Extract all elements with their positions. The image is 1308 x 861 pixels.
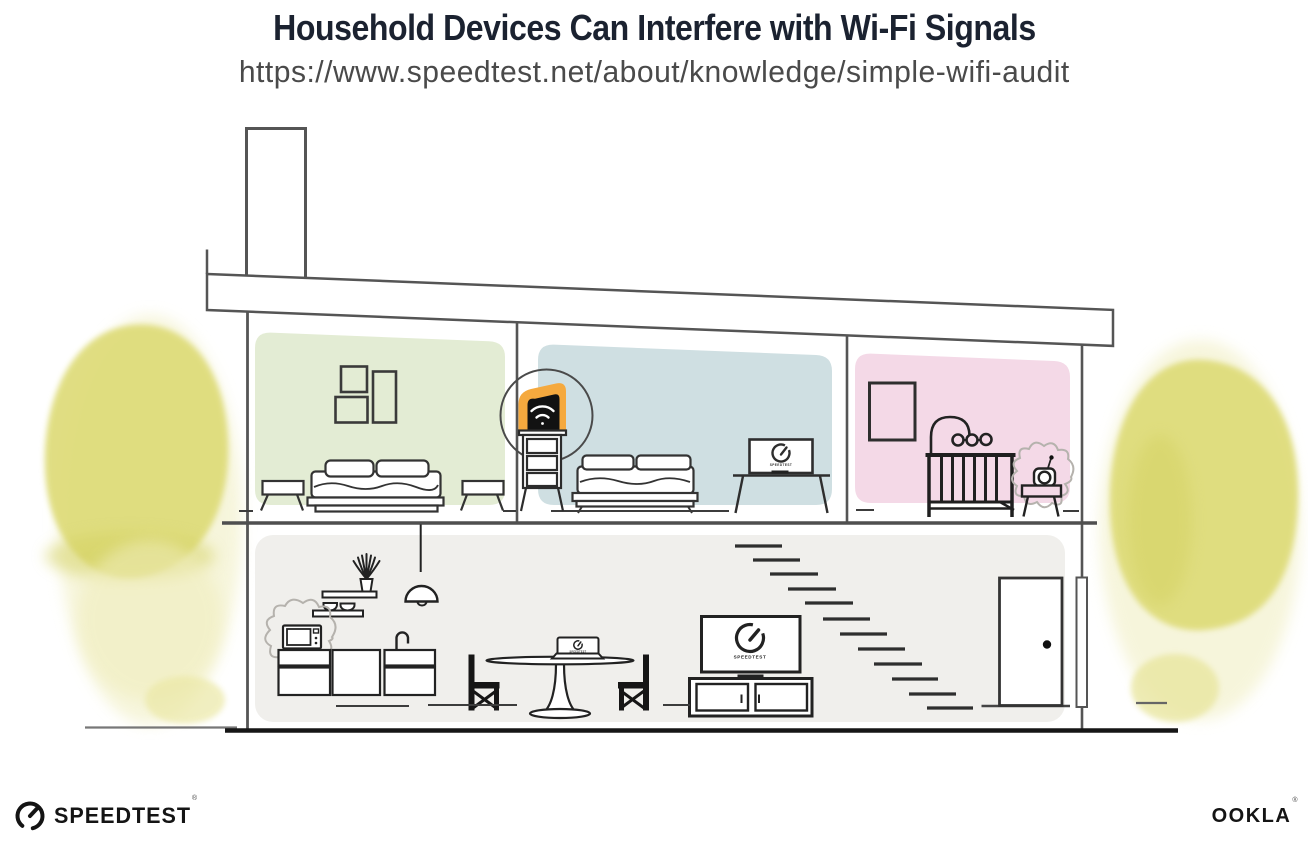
speedtest-wordmark-text: SPEEDTEST xyxy=(54,803,191,828)
dresser-body xyxy=(523,435,561,488)
bed-base xyxy=(316,506,438,512)
laptop-icon: SPEEDTEST xyxy=(552,638,603,659)
pillow xyxy=(637,456,691,470)
tv-area: SPEEDTEST xyxy=(690,617,813,717)
chair-seat xyxy=(618,682,649,689)
foliage-right xyxy=(1100,340,1300,722)
mobile-bead xyxy=(953,435,964,446)
monitor-stand xyxy=(772,471,789,474)
speedtest-gauge-icon xyxy=(13,799,47,833)
foliage-left xyxy=(45,315,242,725)
monitor-screen-label: SPEEDTEST xyxy=(770,463,793,467)
house-cutaway-illustration: SPEEDTEST xyxy=(0,0,1308,861)
pillow xyxy=(583,456,634,470)
mobile-bead xyxy=(981,434,992,445)
pillow xyxy=(377,461,429,477)
bed-base xyxy=(577,501,694,507)
foliage-spot xyxy=(145,676,225,724)
foliage-wash xyxy=(78,540,222,700)
microwave-panel xyxy=(314,629,319,633)
infographic-canvas: Household Devices Can Interfere with Wi-… xyxy=(0,0,1308,861)
entry-door xyxy=(1000,578,1063,706)
stool-top xyxy=(463,481,504,495)
cabinet-door xyxy=(279,668,331,696)
speedtest-wordmark: SPEEDTEST® xyxy=(54,803,197,829)
ookla-logo: OOKLA® xyxy=(1212,805,1298,828)
bed-base xyxy=(308,498,444,506)
foliage-spot xyxy=(1131,654,1219,722)
downspout xyxy=(1077,578,1088,708)
registered-mark: ® xyxy=(1292,797,1299,804)
kitchen-shelf xyxy=(313,611,363,617)
cabinet-door xyxy=(385,668,436,696)
dresser-leg xyxy=(521,488,526,511)
stool-top xyxy=(263,481,304,495)
roof xyxy=(207,274,1113,346)
table-base xyxy=(530,709,590,718)
microwave-knob xyxy=(315,637,318,640)
tv-screen-label: SPEEDTEST xyxy=(734,655,767,660)
laptop-base xyxy=(552,654,603,659)
mobile-bead xyxy=(967,435,978,446)
nursery-table-top xyxy=(1022,486,1061,497)
cabinet-door xyxy=(333,650,381,695)
wifi-dot xyxy=(541,422,544,425)
cabinet-drawer xyxy=(385,650,436,666)
door-knob xyxy=(1043,640,1051,648)
chair-seat xyxy=(469,682,500,689)
wifi-router-icon xyxy=(528,394,560,431)
speedtest-logo: SPEEDTEST® xyxy=(13,799,200,833)
console-door xyxy=(756,684,808,711)
cabinet-drawer xyxy=(279,650,331,666)
microwave-icon xyxy=(283,626,321,649)
bed-base xyxy=(573,493,698,501)
console-door xyxy=(697,684,749,711)
foliage-shade xyxy=(1128,435,1192,605)
pillow xyxy=(326,461,374,477)
ookla-wordmark-text: OOKLA xyxy=(1212,805,1292,827)
bed xyxy=(308,461,444,512)
registered-mark: ® xyxy=(192,795,198,802)
ookla-wordmark: OOKLA® xyxy=(1212,805,1298,827)
chimney xyxy=(247,129,306,286)
microwave-knob xyxy=(315,642,318,645)
plant-pot xyxy=(361,579,373,592)
antenna-tip xyxy=(1049,455,1053,459)
bowl xyxy=(341,604,355,611)
microwave-door xyxy=(287,629,311,645)
